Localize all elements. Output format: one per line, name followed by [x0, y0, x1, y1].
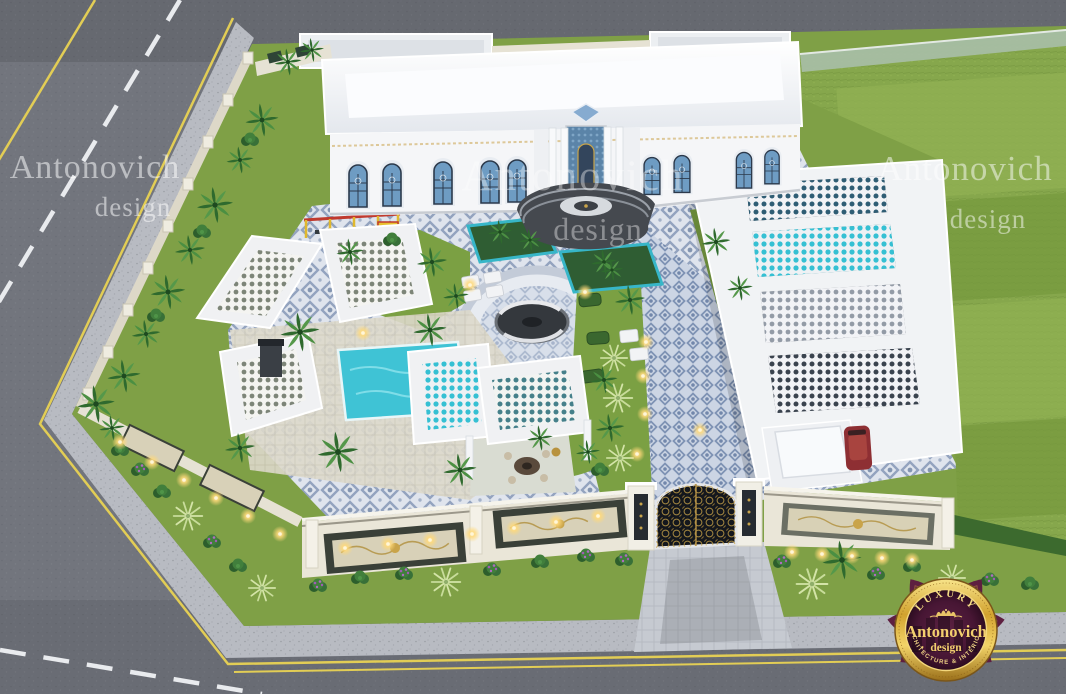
badge-name-text: Antonovich	[905, 622, 987, 641]
front-wall-right	[764, 488, 954, 550]
badge-name2-text: design	[930, 642, 962, 654]
arched-window	[734, 149, 754, 190]
wall-light	[144, 454, 160, 470]
arched-window	[762, 147, 781, 185]
golden-planter-pot	[552, 448, 561, 457]
wall-light	[272, 526, 288, 542]
garden-light	[629, 446, 645, 462]
garden-light	[637, 406, 653, 422]
garden-light	[355, 325, 371, 341]
wall-light	[380, 536, 396, 552]
watermark-text: design	[553, 211, 643, 247]
parked-car	[843, 425, 872, 471]
watermark-text: Antonovich	[10, 149, 181, 186]
wall-light	[337, 540, 353, 556]
wall-light	[506, 520, 522, 536]
arched-window	[346, 161, 370, 209]
wall-light	[784, 544, 800, 560]
pergola-column	[466, 436, 473, 478]
garden-light	[692, 422, 708, 438]
garden-light	[462, 277, 478, 293]
wall-light	[112, 434, 128, 450]
wall-light	[814, 546, 830, 562]
skylight-pool	[752, 224, 896, 277]
wall-light	[176, 472, 192, 488]
skylight-lattice-3	[760, 284, 906, 343]
wall-light	[240, 508, 256, 524]
arched-window	[431, 158, 455, 206]
garden-light	[635, 368, 651, 384]
garden-light	[577, 284, 593, 300]
wall-light	[844, 548, 860, 564]
wall-light	[464, 526, 480, 542]
wall-light	[590, 508, 606, 524]
render-canvas: Antonovich design Antonovich design Anto…	[0, 0, 1066, 694]
watermark-text: design	[95, 192, 172, 222]
watermark-text: design	[950, 204, 1027, 234]
wall-light	[422, 532, 438, 548]
wall-light	[904, 552, 920, 568]
driveway	[634, 542, 792, 652]
watermark-text: Antonovich	[877, 149, 1052, 188]
wall-light	[208, 490, 224, 506]
wall-light	[548, 514, 564, 530]
fireplace-chimney	[260, 343, 282, 377]
entrance-gate	[625, 478, 765, 550]
garden-light	[638, 334, 654, 350]
skylight-lattice-4	[768, 348, 920, 413]
wall-light	[874, 550, 890, 566]
arched-window	[380, 160, 404, 208]
watermark-text: Antonovich	[461, 153, 684, 200]
